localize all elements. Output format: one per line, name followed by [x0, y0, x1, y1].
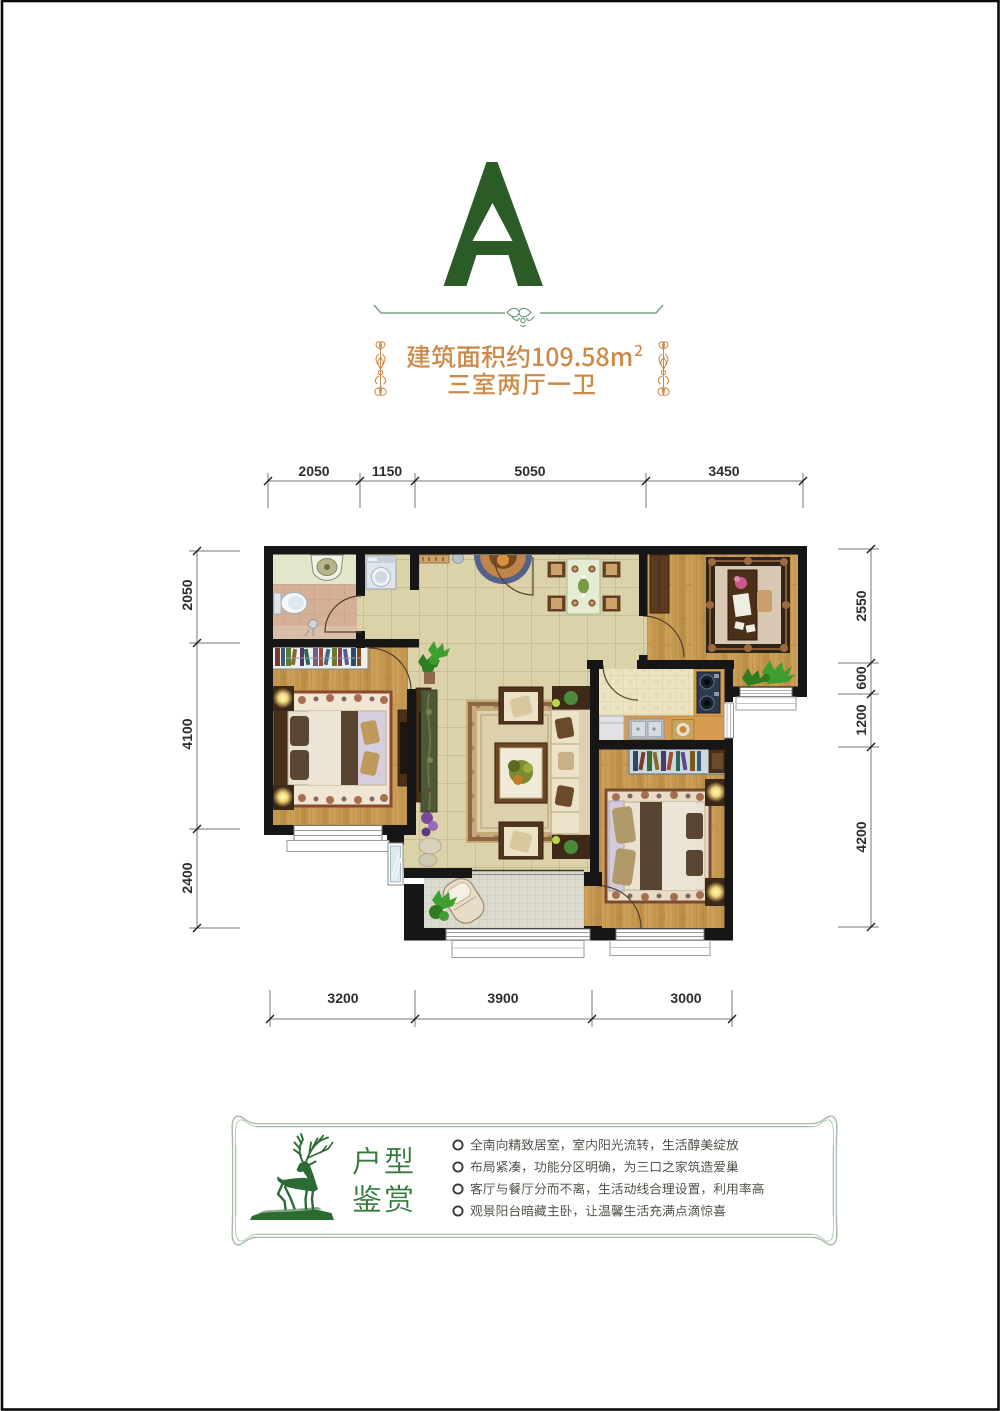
svg-text:1200: 1200	[853, 704, 869, 735]
svg-text:2050: 2050	[298, 463, 329, 479]
svg-text:2400: 2400	[179, 862, 195, 893]
svg-text:3450: 3450	[708, 463, 739, 479]
svg-text:4200: 4200	[853, 821, 869, 852]
svg-text:4100: 4100	[179, 718, 195, 749]
svg-text:5050: 5050	[514, 463, 545, 479]
svg-text:2550: 2550	[853, 590, 869, 621]
svg-text:2050: 2050	[179, 579, 195, 610]
svg-text:3000: 3000	[670, 990, 701, 1006]
svg-text:3900: 3900	[487, 990, 518, 1006]
svg-text:3200: 3200	[327, 990, 358, 1006]
svg-text:1150: 1150	[372, 463, 403, 479]
svg-text:600: 600	[853, 666, 869, 690]
